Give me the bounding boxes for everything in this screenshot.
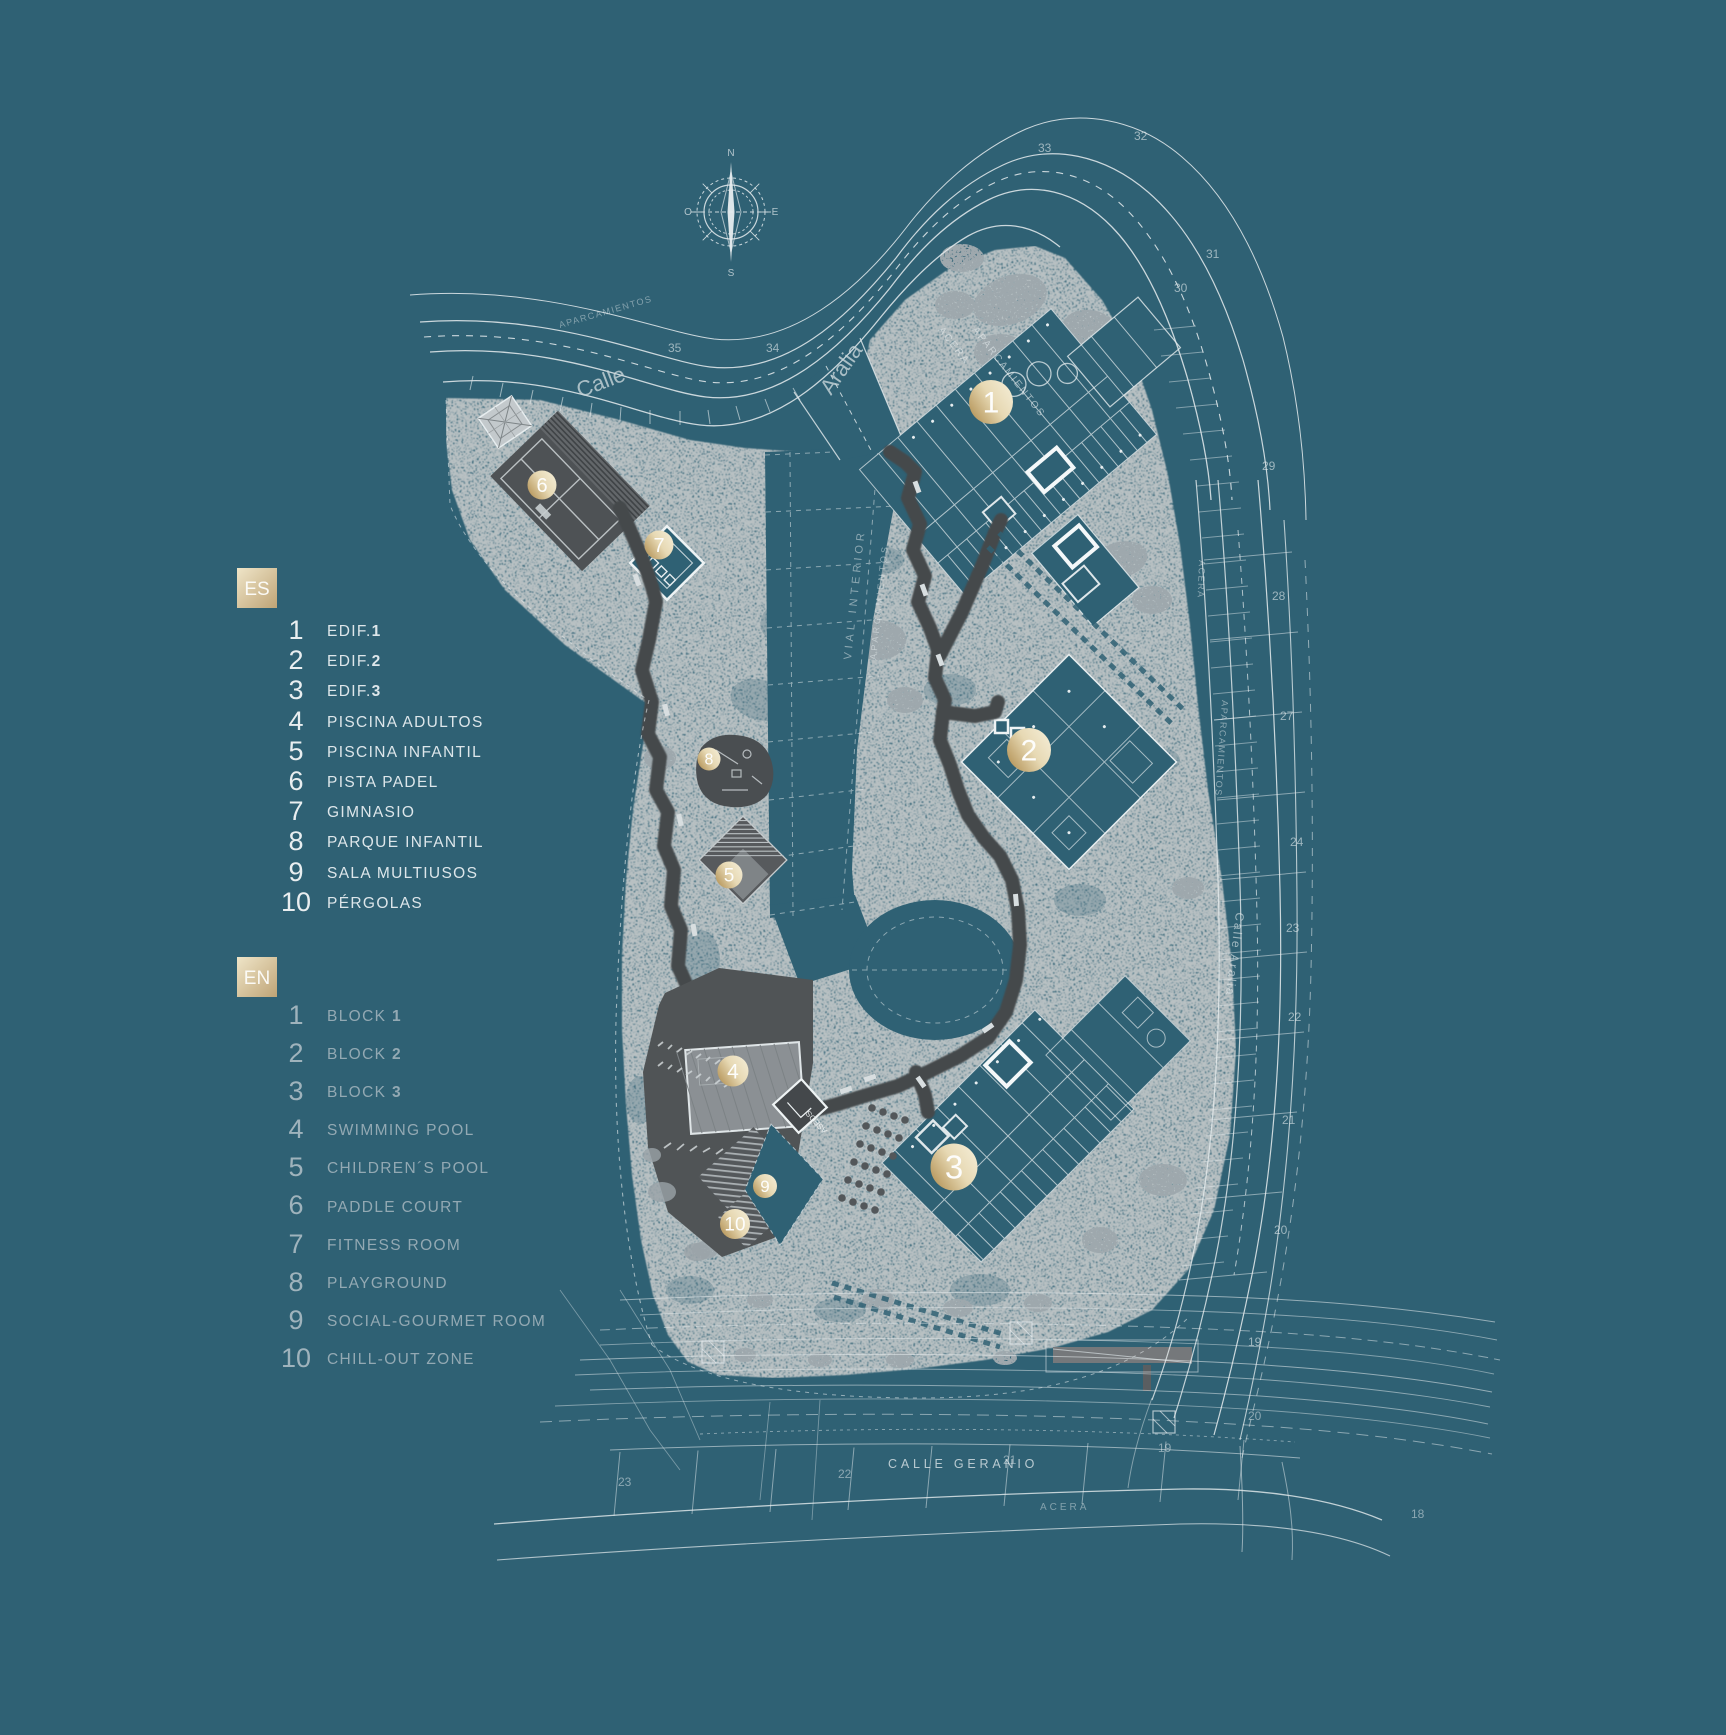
svg-text:19: 19 <box>1158 1441 1172 1455</box>
svg-text:4: 4 <box>727 1060 739 1083</box>
svg-text:EDIF.2: EDIF.2 <box>327 653 382 670</box>
svg-text:BLOCK 1: BLOCK 1 <box>327 1008 402 1025</box>
svg-text:28: 28 <box>1272 589 1286 603</box>
svg-text:21: 21 <box>1282 1113 1296 1127</box>
svg-text:O: O <box>684 207 692 218</box>
svg-text:29: 29 <box>1262 459 1276 473</box>
svg-text:2: 2 <box>288 1038 303 1068</box>
svg-text:8: 8 <box>288 1267 303 1297</box>
svg-text:4: 4 <box>288 706 303 736</box>
svg-text:E: E <box>772 207 779 218</box>
svg-text:5: 5 <box>288 1152 303 1182</box>
svg-text:ACERA: ACERA <box>1196 560 1207 599</box>
svg-text:10: 10 <box>281 887 311 917</box>
svg-text:33: 33 <box>1038 141 1052 155</box>
svg-text:BLOCK 2: BLOCK 2 <box>327 1046 402 1063</box>
svg-text:1: 1 <box>983 387 1000 420</box>
svg-text:FITNESS ROOM: FITNESS ROOM <box>327 1237 461 1254</box>
svg-text:2: 2 <box>288 645 303 675</box>
svg-text:PÉRGOLAS: PÉRGOLAS <box>327 895 423 912</box>
svg-text:30: 30 <box>1174 281 1188 295</box>
svg-text:SOCIAL-GOURMET ROOM: SOCIAL-GOURMET ROOM <box>327 1313 546 1330</box>
svg-text:23: 23 <box>1286 921 1300 935</box>
svg-text:1: 1 <box>288 615 303 645</box>
svg-text:EN: EN <box>244 968 270 989</box>
svg-text:9: 9 <box>760 1177 769 1196</box>
svg-text:PISCINA ADULTOS: PISCINA ADULTOS <box>327 714 484 731</box>
svg-text:3: 3 <box>288 675 303 705</box>
svg-text:7: 7 <box>288 796 303 826</box>
svg-text:PLAYGROUND: PLAYGROUND <box>327 1275 448 1292</box>
svg-text:PISCINA INFANTIL: PISCINA INFANTIL <box>327 744 482 761</box>
svg-text:EDIF.1: EDIF.1 <box>327 623 382 640</box>
svg-text:EDIF.3: EDIF.3 <box>327 683 382 700</box>
svg-text:SALA MULTIUSOS: SALA MULTIUSOS <box>327 865 478 882</box>
svg-text:18: 18 <box>1411 1507 1425 1521</box>
svg-text:ES: ES <box>244 579 269 600</box>
svg-text:PADDLE COURT: PADDLE COURT <box>327 1199 463 1216</box>
svg-text:N: N <box>727 148 734 159</box>
svg-text:20: 20 <box>1248 1409 1262 1423</box>
svg-text:22: 22 <box>838 1467 852 1481</box>
svg-text:35: 35 <box>668 341 682 355</box>
svg-text:6: 6 <box>288 766 303 796</box>
svg-text:4: 4 <box>288 1114 303 1144</box>
svg-text:ACERA: ACERA <box>1040 1502 1089 1513</box>
svg-text:7: 7 <box>288 1229 303 1259</box>
svg-text:GIMNASIO: GIMNASIO <box>327 804 415 821</box>
svg-text:31: 31 <box>1206 247 1220 261</box>
svg-text:34: 34 <box>766 341 780 355</box>
svg-text:10: 10 <box>724 1215 745 1236</box>
svg-text:SWIMMING POOL: SWIMMING POOL <box>327 1122 475 1139</box>
svg-text:32: 32 <box>1134 129 1148 143</box>
svg-text:5: 5 <box>288 736 303 766</box>
svg-text:S: S <box>728 268 735 279</box>
svg-text:27: 27 <box>1280 709 1294 723</box>
svg-text:8: 8 <box>705 752 714 769</box>
svg-text:7: 7 <box>653 535 664 557</box>
svg-text:10: 10 <box>281 1343 311 1373</box>
svg-text:5: 5 <box>724 866 735 887</box>
svg-text:PARQUE INFANTIL: PARQUE INFANTIL <box>327 834 484 851</box>
svg-text:1: 1 <box>288 1000 303 1030</box>
svg-text:3: 3 <box>288 1076 303 1106</box>
svg-text:3: 3 <box>945 1149 963 1186</box>
svg-text:2: 2 <box>1021 735 1038 768</box>
svg-text:21: 21 <box>1003 1453 1017 1467</box>
svg-text:PISTA PADEL: PISTA PADEL <box>327 774 439 791</box>
svg-text:24: 24 <box>1290 835 1304 849</box>
svg-text:CHILL-OUT ZONE: CHILL-OUT ZONE <box>327 1351 475 1368</box>
svg-text:23: 23 <box>618 1475 632 1489</box>
svg-text:9: 9 <box>288 1305 303 1335</box>
svg-text:22: 22 <box>1288 1010 1302 1024</box>
svg-text:BLOCK 3: BLOCK 3 <box>327 1084 402 1101</box>
svg-text:6: 6 <box>536 475 547 497</box>
svg-text:8: 8 <box>288 826 303 856</box>
svg-text:6: 6 <box>288 1190 303 1220</box>
svg-text:20: 20 <box>1274 1223 1288 1237</box>
svg-text:9: 9 <box>288 857 303 887</box>
svg-text:CHILDREN´S POOL: CHILDREN´S POOL <box>327 1160 489 1177</box>
